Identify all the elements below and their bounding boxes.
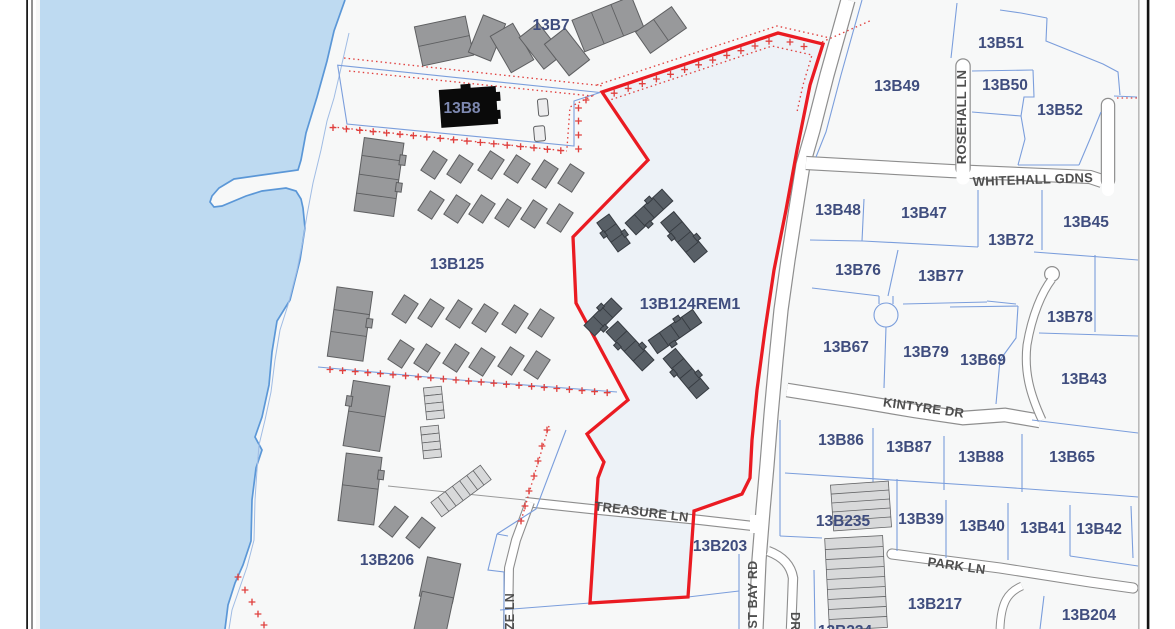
svg-text:13B125: 13B125 [430,256,485,273]
svg-text:13B52: 13B52 [1037,102,1083,119]
svg-text:ROSEHALL LN: ROSEHALL LN [954,70,969,164]
svg-text:OZE LN: OZE LN [503,593,517,629]
svg-text:13B7: 13B7 [532,17,569,34]
svg-text:13B40: 13B40 [959,518,1005,535]
svg-text:13B203: 13B203 [693,538,748,555]
svg-text:13B78: 13B78 [1047,309,1093,326]
svg-text:13B88: 13B88 [958,449,1004,466]
svg-text:13B79: 13B79 [903,344,949,361]
svg-text:13B65: 13B65 [1049,449,1095,466]
svg-text:13B42: 13B42 [1076,521,1122,538]
svg-text:13B72: 13B72 [988,232,1034,249]
svg-text:13B49: 13B49 [874,78,920,95]
svg-text:13B41: 13B41 [1020,520,1066,537]
svg-text:13B235: 13B235 [816,513,871,530]
svg-text:13B51: 13B51 [978,35,1024,52]
svg-text:13B87: 13B87 [886,439,932,456]
svg-text:13B8: 13B8 [443,100,480,117]
svg-text:13B76: 13B76 [835,262,881,279]
svg-text:13B39: 13B39 [898,511,944,528]
svg-text:13B86: 13B86 [818,432,864,449]
svg-text:13B67: 13B67 [823,339,869,356]
svg-text:DR: DR [788,612,802,629]
svg-text:13B47: 13B47 [901,205,947,222]
svg-text:13B77: 13B77 [918,268,964,285]
svg-text:13B204: 13B204 [1062,607,1117,624]
svg-text:13B217: 13B217 [908,596,962,613]
svg-text:13B124REM1: 13B124REM1 [640,296,741,313]
svg-text:WEST BAY RD: WEST BAY RD [746,561,760,629]
svg-text:13B50: 13B50 [982,77,1028,94]
svg-text:13B43: 13B43 [1061,371,1107,388]
svg-text:13B206: 13B206 [360,552,415,569]
svg-text:13B69: 13B69 [960,352,1006,369]
svg-text:13B234: 13B234 [818,623,873,629]
svg-text:13B45: 13B45 [1063,214,1109,231]
svg-text:13B48: 13B48 [815,202,861,219]
